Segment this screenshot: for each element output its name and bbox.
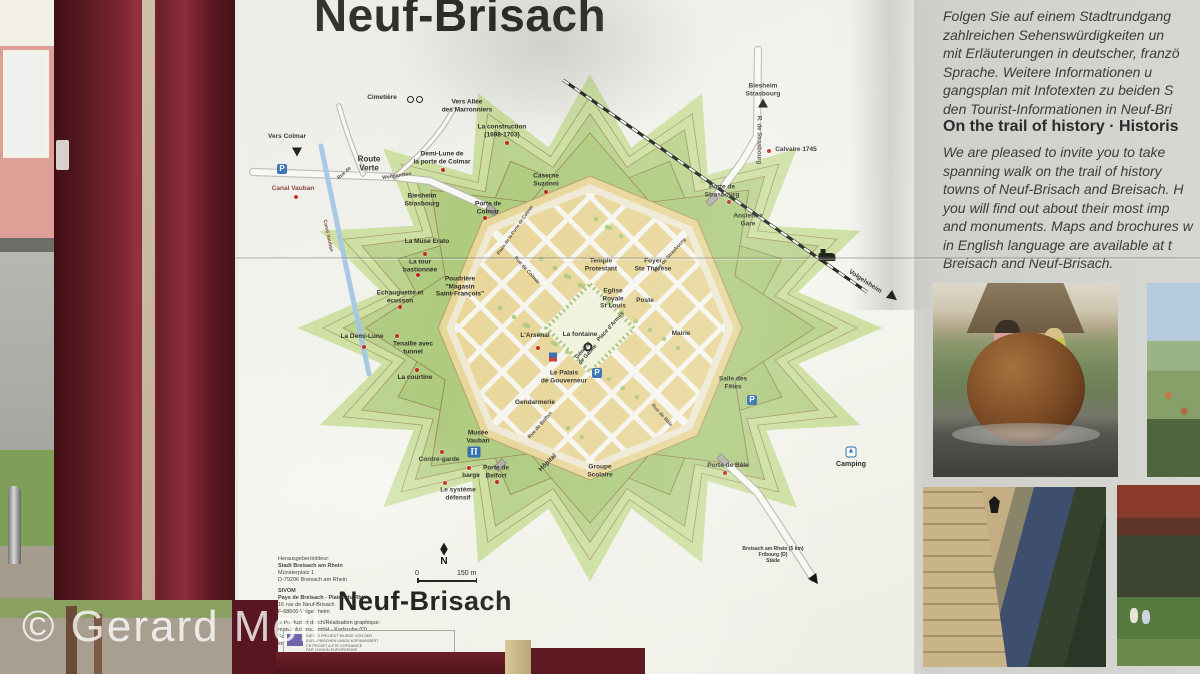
text-line: D-79206 Breisach am Rhein [278, 577, 488, 584]
info-icon [549, 353, 557, 362]
map-label: Rue de Belfort [527, 411, 554, 440]
map-label: Place d'Armes [596, 311, 626, 343]
text-line: Pays de Breisach - Plaine du Rhin [278, 595, 488, 602]
poi-dot [443, 481, 447, 485]
poi-dot [362, 345, 366, 349]
building-base [0, 238, 55, 252]
map-label: Tenaille avec tunnel [393, 340, 433, 355]
text-line: spanning walk on the trail of history [943, 162, 1193, 181]
map-label: barge [462, 472, 480, 480]
map-label: Temple Protestant [585, 257, 617, 272]
map-label: La fontaine [563, 331, 598, 339]
map-label: Biesheim Strasbourg [746, 82, 781, 97]
museum-icon: Π [468, 447, 481, 458]
english-paragraph: We are pleased to invite you to takespan… [943, 143, 1193, 273]
text-line: Folgen Sie auf einem Stadtrundgang [943, 7, 1180, 26]
map-label: Cimetière [367, 94, 397, 102]
map-label: Echauguette et écusson [377, 289, 424, 304]
map-label: Caserne Suzonni [533, 172, 559, 187]
map-label: La Demi-Lune [341, 333, 384, 341]
map-label: Ancienne Gare [733, 212, 762, 227]
map-label: Vers Colmar [268, 133, 306, 141]
map-label: La Muse Erato [405, 238, 449, 246]
photo-person [1130, 608, 1138, 623]
text-line: zahlreichen Sehenswürdigkeiten un [943, 26, 1180, 45]
text-line: SIVOM [278, 588, 488, 595]
poi-dot [415, 368, 419, 372]
map-label: Général de Gaulle [573, 339, 599, 366]
map-label: Rue de Colmar [512, 256, 540, 286]
bicycle-icon [407, 96, 423, 104]
map-label: Wolfgantzen [382, 172, 412, 182]
street-photo-scene: Neuf-Brisach CimetièreVers Allée des Mar… [0, 0, 1200, 674]
photo-red-tower [1117, 485, 1200, 666]
map-label: Musée Vauban [466, 429, 489, 444]
arrow-se-icon [808, 573, 822, 587]
map-label: La courtine [397, 374, 432, 382]
map-label: Hôpital [538, 453, 559, 474]
pole-highlight [142, 0, 155, 600]
map-label: Porte de Belfort [483, 464, 509, 479]
arrow-se-icon [886, 290, 900, 304]
text-line: towns of Neuf-Brisach and Breisach. H [943, 180, 1193, 199]
map-label: Volgelsheim [847, 268, 883, 295]
text-line: Stadt Breisach am Rhein [278, 563, 488, 570]
camping-icon: ▲ [846, 447, 857, 458]
map-label: L'Arsenal [520, 332, 549, 340]
poi-dot [395, 334, 399, 338]
map-label: Canal Vauban [272, 185, 315, 193]
parking-icon: P [592, 368, 602, 378]
map-label: Demi-Lune de la porte de Colmar [413, 150, 470, 165]
poi-dot [483, 216, 487, 220]
german-paragraph: Folgen Sie auf einem Stadtrundgangzahlre… [943, 7, 1180, 118]
poi-dot [441, 168, 445, 172]
poi-dot [505, 141, 509, 145]
map-label: Canal Vauban [321, 219, 334, 252]
map-label: Porte de Strasbourg [705, 183, 740, 198]
street-background [0, 0, 55, 674]
text-line: den Tourist-Informationen in Neuf-Bri [943, 100, 1180, 119]
poi-dot [495, 480, 499, 484]
pavement [0, 252, 55, 450]
text-line: We are pleased to invite you to take [943, 143, 1193, 162]
photo-stone-wall [923, 487, 1007, 667]
poi-dot [544, 190, 548, 194]
map-label: Eglise Royale St Louis [600, 288, 626, 311]
arrow-up-icon [758, 99, 768, 108]
map-label: La tour bastionnée [403, 258, 437, 273]
poi-dot [767, 149, 771, 153]
map-label: R. de Strasbourg [754, 116, 761, 164]
wooden-stick [505, 640, 531, 674]
map-label: Poudrière "Magasin Saint-François" [436, 276, 484, 299]
map-label: La construction (1698-1703) [478, 123, 527, 138]
photo-water-splash [952, 423, 1100, 446]
text-line: you will find out about their most imp [943, 199, 1193, 218]
parking-icon: P [277, 164, 287, 174]
map-labels: CimetièreVers Allée des MarronniersVers … [245, 40, 905, 620]
text-line: Münsterplatz 1 [278, 570, 488, 577]
map-label: Porte de Colmar [475, 200, 501, 215]
map-label: Poste [636, 297, 654, 305]
sign-title: Neuf-Brisach [280, 0, 640, 42]
glass-seam-line [235, 257, 1200, 259]
map-panel: CimetièreVers Allée des MarronniersVers … [245, 40, 905, 620]
parking-icon: P [747, 395, 757, 405]
building-window [3, 50, 49, 158]
photo-sphere-fountain [933, 283, 1118, 477]
text-line: Sprache. Weitere Informationen u [943, 63, 1180, 82]
map-label: Rue de [337, 166, 353, 182]
building-upper-window [0, 0, 55, 46]
map-label: Groupe Scolaire [587, 463, 612, 478]
poi-dot [440, 450, 444, 454]
map-label: Mairie [672, 330, 691, 338]
map-label: Breisach am Rhein (5 km) Fribourg (D) St… [742, 547, 803, 565]
map-label: Le système défensif [440, 486, 475, 501]
map-label: Vers Allée des Marronniers [442, 98, 493, 113]
photo-village-view [1147, 283, 1200, 477]
text-line: in English language are available at t [943, 236, 1193, 255]
poi-dot [467, 466, 471, 470]
map-label: Salle des Fêtes [719, 375, 747, 390]
map-label: Route Verte [358, 155, 381, 174]
text-line: gangsplan mit Infotexten zu beiden S [943, 81, 1180, 100]
text-line: mit Erläuterungen in deutscher, franzö [943, 44, 1180, 63]
photo-fortress-wall [923, 487, 1106, 667]
information-sign-board: Neuf-Brisach CimetièreVers Allée des Mar… [235, 0, 1200, 674]
map-label: Rue de Bâle [649, 403, 673, 428]
map-label: Le Palais de Gouverneur [541, 369, 587, 384]
poi-dot [536, 346, 540, 350]
map-label: Place de la Porte de Colmar [496, 204, 534, 256]
poi-dot [294, 195, 298, 199]
metal-post [8, 486, 21, 564]
sign-frame-bottom-bar [529, 648, 645, 674]
poi-dot [423, 252, 427, 256]
sign-frame-bottom-bar [276, 652, 512, 674]
arrow-down-icon [292, 148, 302, 157]
text-line: and monuments. Maps and brochures w [943, 217, 1193, 236]
poi-dot [398, 305, 402, 309]
sign-frame-pole [54, 0, 235, 600]
map-label: Contre-garde [419, 456, 460, 464]
map-label: Porte de Bâle [707, 462, 749, 470]
photo-lantern [989, 496, 1000, 513]
watermark: © Gerard Moll [22, 602, 322, 652]
english-heading: On the trail of history · Historis [943, 118, 1179, 136]
map-label: Biesheim Strasbourg [405, 192, 440, 207]
pole-sticker [56, 140, 69, 170]
map-label: Gendarmerie [515, 399, 555, 407]
poi-dot [727, 200, 731, 204]
poi-dot [723, 471, 727, 475]
photo-person [1142, 610, 1150, 624]
text-line: Herausgeber/éditeur: [278, 556, 488, 563]
photo-house-roof [966, 283, 1084, 333]
map-label: Camping [836, 461, 866, 469]
map-label: Calvaire 1745 [775, 146, 817, 154]
